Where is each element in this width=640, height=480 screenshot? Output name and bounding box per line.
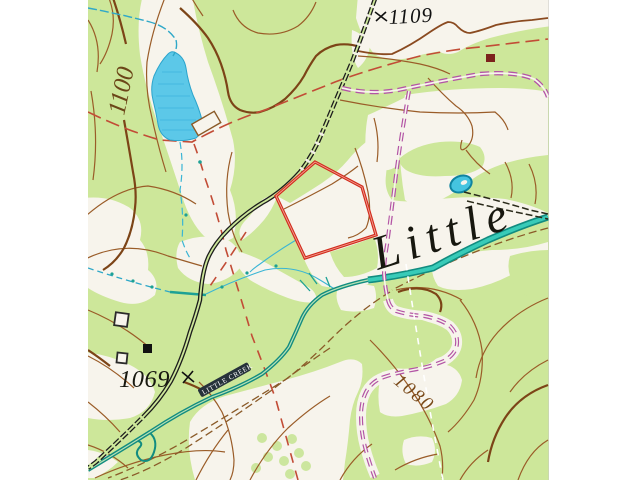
svg-text:1069: 1069	[119, 366, 170, 393]
svg-text:1109: 1109	[388, 3, 434, 29]
